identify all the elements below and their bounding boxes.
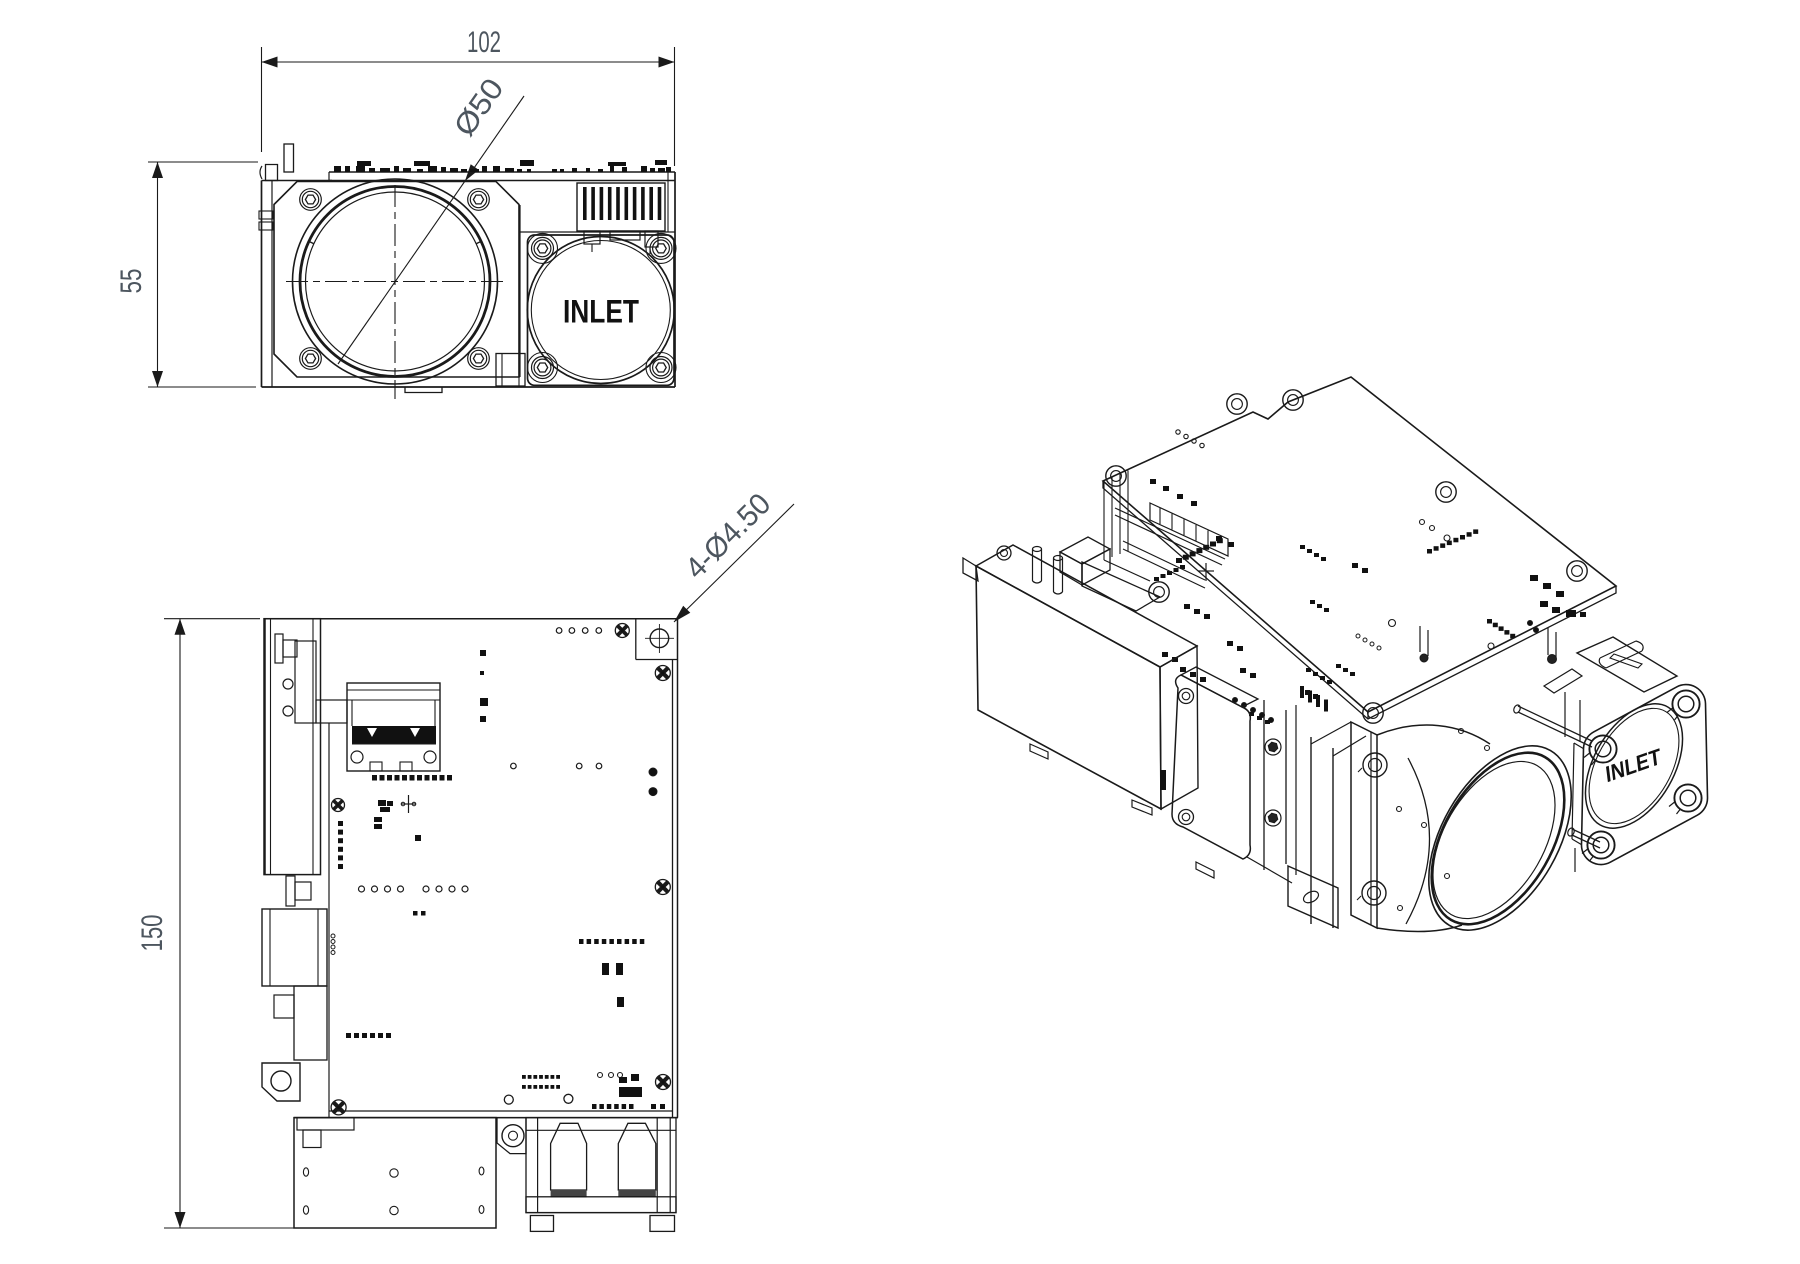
- svg-text:INLET: INLET: [563, 294, 639, 330]
- svg-text:55: 55: [115, 269, 148, 294]
- svg-text:102: 102: [467, 26, 501, 59]
- svg-text:150: 150: [136, 915, 169, 952]
